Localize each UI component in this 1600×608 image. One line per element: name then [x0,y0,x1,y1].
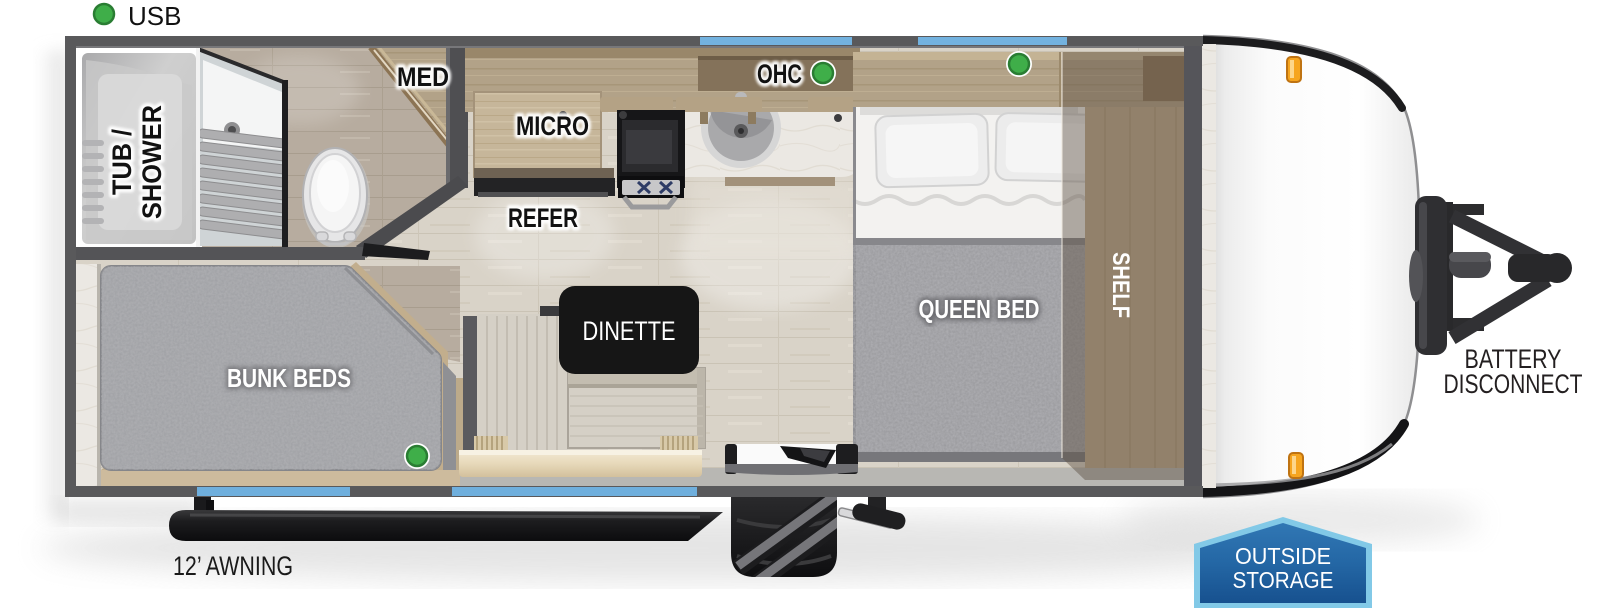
svg-text:SHELF: SHELF [1107,252,1134,318]
svg-text:SHOWER: SHOWER [137,105,167,219]
svg-text:STORAGE: STORAGE [1233,567,1334,593]
svg-text:MICRO: MICRO [516,111,589,141]
svg-text:12’ AWNING: 12’ AWNING [173,551,293,581]
svg-text:DINETTE: DINETTE [583,316,676,346]
svg-text:MED: MED [397,62,449,92]
svg-text:OUTSIDE: OUTSIDE [1235,543,1331,569]
svg-text:OHC: OHC [757,59,802,89]
svg-text:REFER: REFER [508,203,578,233]
svg-text:QUEEN BED: QUEEN BED [919,294,1040,324]
svg-text:TUB /: TUB / [107,129,137,195]
svg-text:USB: USB [128,1,181,31]
svg-text:DISCONNECT: DISCONNECT [1444,369,1583,399]
svg-text:BUNK BEDS: BUNK BEDS [227,363,351,393]
